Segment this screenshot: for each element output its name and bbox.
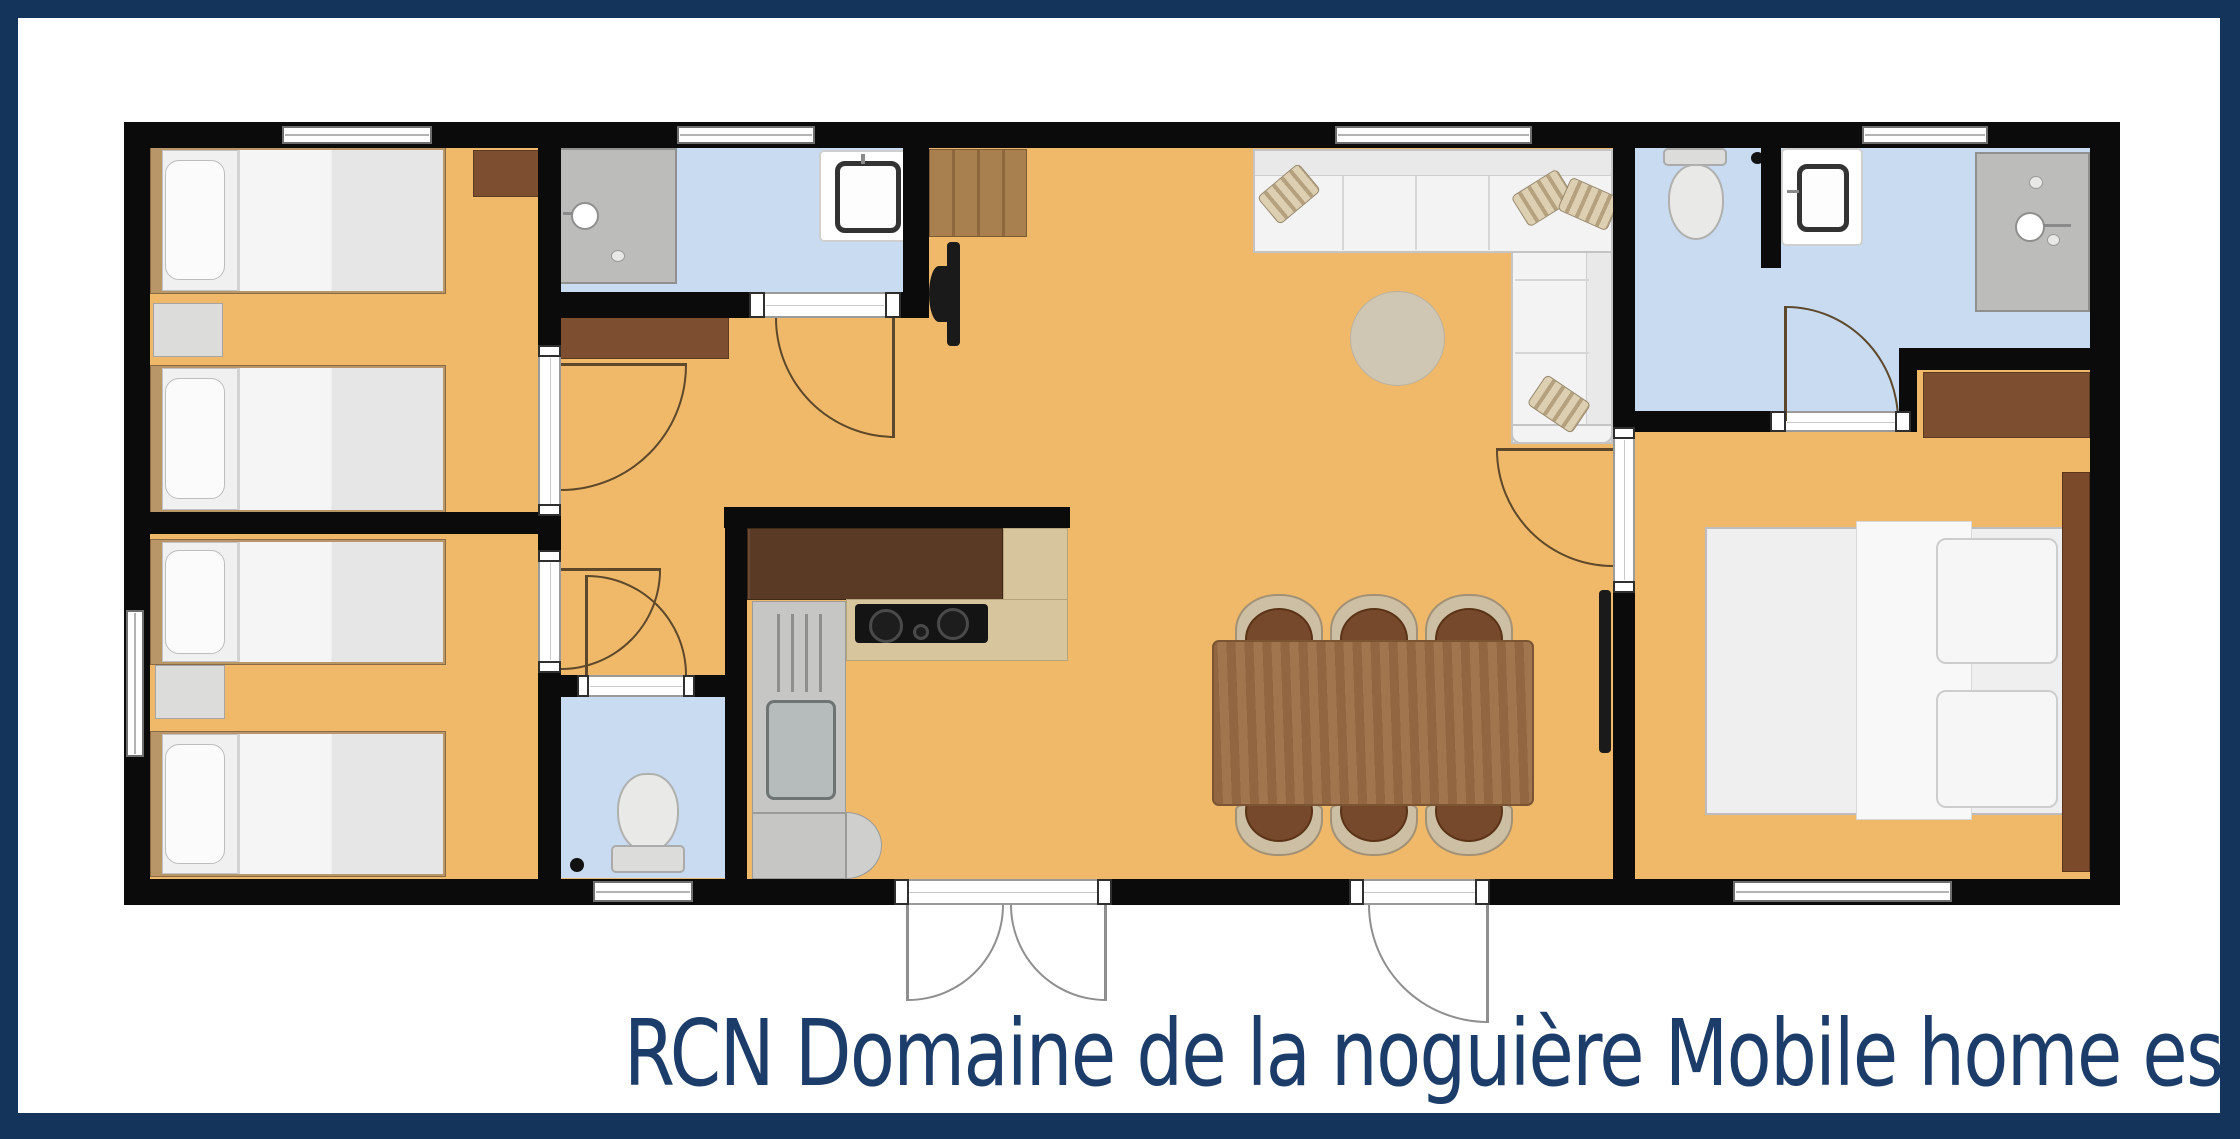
shower-tray [557, 148, 677, 284]
single-bed-2 [150, 365, 446, 513]
nightstand [155, 665, 225, 719]
doorway [538, 355, 561, 508]
master-dresser [1923, 372, 2090, 438]
tv-mount-icon [929, 266, 949, 322]
toilet [617, 773, 679, 853]
door-post [683, 675, 695, 697]
single-bed-3 [150, 539, 446, 665]
doorway [1613, 437, 1635, 583]
shower-head-icon [2015, 212, 2045, 242]
kitchen-upper-cabinets [747, 528, 1003, 600]
doorway [538, 560, 561, 663]
window [593, 881, 693, 902]
tv-icon [1599, 590, 1611, 753]
wall-bathroom-stub [1761, 145, 1781, 268]
wall-showerroom-right [903, 148, 929, 318]
wall-kitchen-top [724, 507, 1070, 528]
cooktop [855, 604, 988, 643]
window [1733, 881, 1952, 902]
window [282, 126, 432, 144]
window [126, 610, 144, 757]
round-rug [1350, 291, 1445, 386]
door-post [538, 504, 561, 516]
window [1862, 126, 1988, 144]
sofa-seam [1342, 176, 1344, 250]
shower-tray [1975, 152, 2090, 312]
sofa-seam [1488, 176, 1490, 250]
wall-bedroom-divider [124, 512, 561, 534]
bed-pillow [1936, 538, 2058, 664]
entry-doorway [894, 879, 1112, 905]
sofa-seam [1515, 352, 1589, 354]
door-post [538, 550, 561, 562]
door-post [577, 675, 589, 697]
door-post [538, 345, 561, 357]
single-bed-4 [150, 731, 446, 877]
caption: RCN Domaine de la noguière Mobile home e… [404, 1006, 2240, 1103]
dining-table [1212, 640, 1534, 806]
floor-drain-icon [570, 858, 584, 872]
sofa-seam [1415, 176, 1417, 250]
toilet [1668, 164, 1724, 240]
door-post [885, 292, 901, 318]
wall-outer-right [2090, 122, 2120, 905]
floor-plan-page: RCN Domaine de la noguière Mobile home e… [0, 0, 2240, 1139]
door-post [538, 661, 561, 673]
door-post [1770, 411, 1786, 432]
window [677, 126, 815, 144]
corner-cabinet [473, 150, 539, 197]
washbasin [1781, 148, 1863, 246]
kitchen-sink [766, 700, 836, 800]
door-post [1097, 879, 1112, 905]
kitchen-lower-cabinet [752, 813, 846, 879]
shower-head-icon [571, 202, 599, 230]
entry-door-swing-arc [908, 905, 1004, 1001]
door-post [1895, 411, 1911, 432]
terrace-doorway [1349, 879, 1490, 905]
wall-wc-right [725, 507, 747, 879]
drainboard [766, 614, 832, 692]
door-post [1349, 879, 1364, 905]
sofa-seam [1515, 279, 1589, 281]
bed-pillow [1936, 690, 2058, 808]
door-post [1613, 427, 1635, 439]
nightstand [153, 303, 223, 357]
entry-door-swing-arc [1010, 905, 1106, 1001]
single-bed-1 [150, 147, 446, 294]
doorway [587, 675, 685, 697]
bed-headboard [2062, 472, 2090, 872]
door-post [1613, 581, 1635, 593]
door-post [894, 879, 909, 905]
wall-showerroom-bottom [538, 292, 763, 318]
toilet-tank [611, 845, 685, 873]
doorway [763, 292, 887, 318]
caption-text: RCN Domaine de la noguière Mobile home e… [624, 1006, 2240, 1103]
wall-bathroom-bottom-right [1899, 348, 2090, 370]
window [1335, 126, 1532, 144]
door-post [749, 292, 765, 318]
door-post [1475, 879, 1490, 905]
wardrobe [929, 149, 1027, 237]
